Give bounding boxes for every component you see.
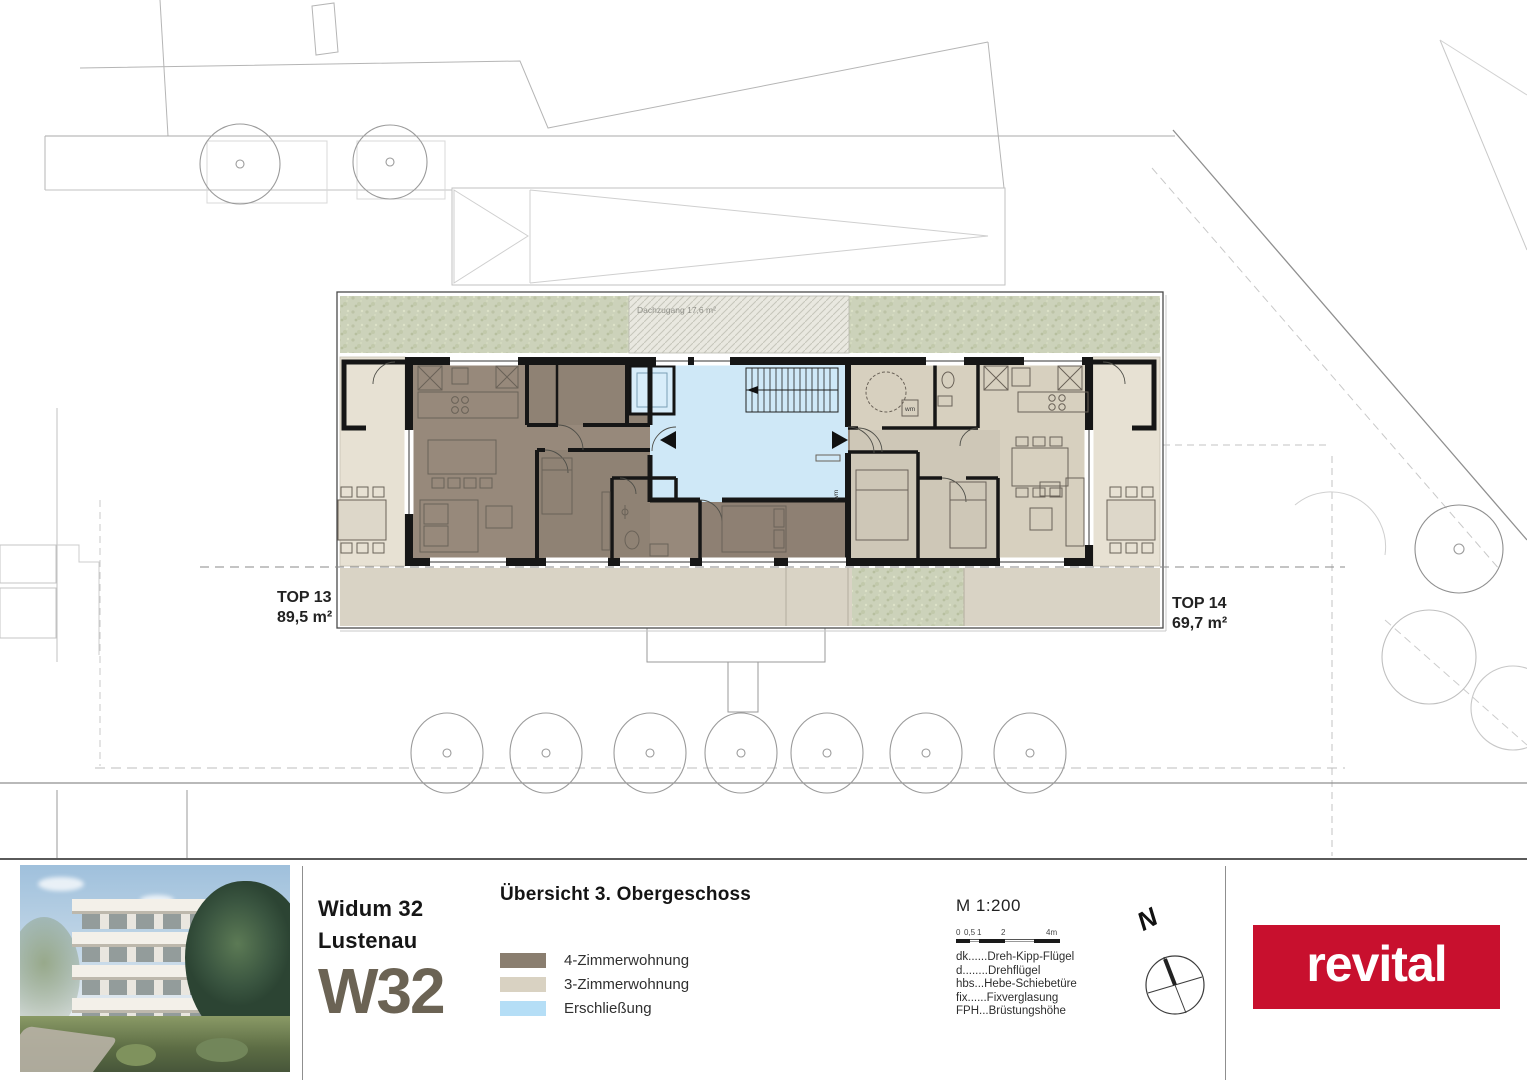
top13-area: 89,5 m² xyxy=(277,609,332,626)
scale-bar: 0 0,5 1 2 4m xyxy=(956,928,1060,944)
sheet-title: Übersicht 3. Obergeschoss xyxy=(500,884,751,906)
legend-swatch-erschliessung xyxy=(500,1001,546,1016)
tree-icon xyxy=(510,713,582,793)
footer-vertical-divider xyxy=(1225,866,1226,1080)
tree-icon xyxy=(1415,505,1503,593)
footer-divider-line xyxy=(0,858,1527,860)
terrace-table-right xyxy=(1107,487,1155,553)
wm-label-right: wm xyxy=(904,406,915,413)
project-name: Widum 32 xyxy=(318,893,444,925)
wm-label-left: wm xyxy=(833,490,840,501)
legend-swatch-3zimmer xyxy=(500,977,546,992)
legend-row-3zimmer: 3-Zimmerwohnung xyxy=(500,972,689,996)
tree-icon xyxy=(791,713,863,793)
project-code: W32 xyxy=(318,959,444,1023)
legend-swatch-4zimmer xyxy=(500,953,546,968)
roof-garden-band: Dachzugang 17,6 m² xyxy=(340,296,1160,353)
tree-icon xyxy=(1471,666,1527,750)
revital-logo-text: revital xyxy=(1306,939,1446,995)
north-arrow: N xyxy=(1128,900,1224,1040)
project-city: Lustenau xyxy=(318,925,444,957)
floorplan-sheet: Dachzugang 17,6 m² xyxy=(0,0,1527,1080)
legend: 4-Zimmerwohnung 3-Zimmerwohnung Erschlie… xyxy=(500,948,689,1020)
tree-icon xyxy=(705,713,777,793)
legend-row-4zimmer: 4-Zimmerwohnung xyxy=(500,948,689,972)
site-plan: Dachzugang 17,6 m² xyxy=(0,0,1527,858)
legend-row-erschliessung: Erschließung xyxy=(500,996,689,1020)
terrace-strip xyxy=(340,568,1160,626)
scale-label: M 1:200 xyxy=(956,896,1060,916)
tree-icon xyxy=(411,713,483,793)
footer-vertical-divider xyxy=(302,866,303,1080)
tree-icon xyxy=(614,713,686,793)
revital-logo: revital xyxy=(1253,925,1500,1009)
terrace-table-left xyxy=(338,487,386,553)
tree-icon xyxy=(994,713,1066,793)
tree-icon xyxy=(890,713,962,793)
north-label: N xyxy=(1132,901,1163,937)
scale-block: M 1:200 0 0,5 1 2 4m xyxy=(956,896,1060,944)
building-photo xyxy=(20,865,290,1072)
top14-label: TOP 14 xyxy=(1172,595,1227,612)
project-block: Widum 32 Lustenau W32 xyxy=(318,893,444,1023)
stair-run xyxy=(746,368,838,412)
roof-access-label: Dachzugang 17,6 m² xyxy=(637,305,716,315)
abbreviation-legend: dk......Dreh-Kipp-Flügel d........Drehfl… xyxy=(956,951,1077,1019)
tree-icon xyxy=(1382,610,1476,704)
top14-area: 69,7 m² xyxy=(1172,615,1227,632)
top13-label: TOP 13 xyxy=(277,589,332,606)
north-compass-icon xyxy=(1142,952,1208,1018)
